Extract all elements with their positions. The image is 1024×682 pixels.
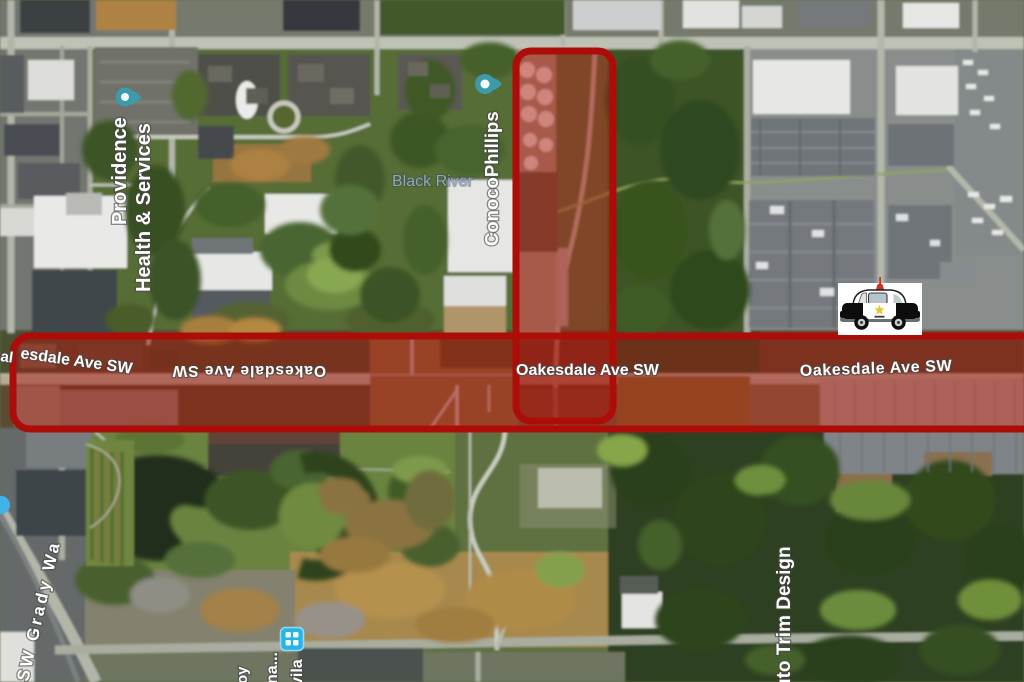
svg-text:ConocoPhillips: ConocoPhillips (481, 111, 502, 246)
svg-text:uto Trim Design: uto Trim Design (774, 546, 795, 682)
svg-text:Oakesdale Ave SW: Oakesdale Ave SW (172, 362, 326, 379)
svg-text:Oakesdale Ave SW: Oakesdale Ave SW (516, 362, 660, 379)
svg-text:Providence: Providence (109, 117, 131, 225)
svg-text:vila: vila (289, 659, 306, 682)
svg-text:na...: na... (264, 652, 281, 682)
svg-text:oy: oy (234, 666, 251, 682)
svg-text:al: al (0, 348, 14, 367)
svg-text:Health & Services: Health & Services (133, 123, 155, 292)
svg-text:Black River: Black River (392, 173, 474, 190)
